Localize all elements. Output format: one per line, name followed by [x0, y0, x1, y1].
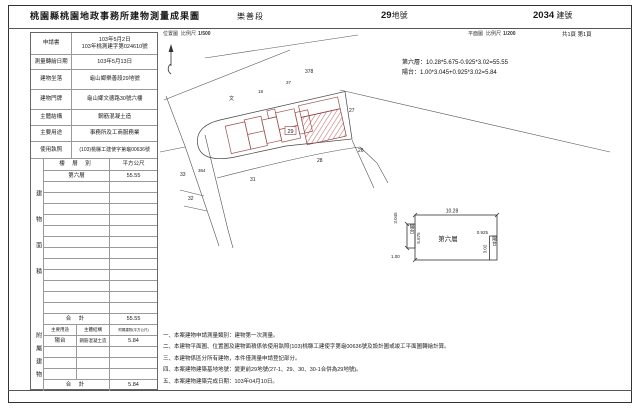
header-divider [8, 28, 632, 29]
row-label: 建物門牌 [31, 90, 72, 109]
empty-row [44, 248, 157, 259]
parcel-number-value: 29 [381, 10, 392, 21]
column-header-floor: 樓 層 別 [44, 159, 110, 170]
location-scale-label: 比例尺 [181, 31, 196, 37]
empty-row [44, 347, 157, 358]
section-name: 樂善段 [237, 11, 264, 22]
row-value: 事務所及工商服務業 [72, 126, 157, 141]
empty-row [44, 204, 157, 215]
row-label: 申請書 [31, 33, 72, 54]
annex-total-label: 合 計 [44, 380, 110, 391]
row-value: 103年5月2日 103年桃測建字第024610號 [72, 33, 157, 54]
area-formulas: 第六層：10.28*5.675-0.925*3.02=55.55 陽台：1.00… [402, 58, 508, 78]
floor-plan-scale: 平面圖比例尺1/200 [468, 30, 516, 37]
annex-section: 附屬建物 主要用途 主體結構 附屬建物(平方公尺) 陽台 鋼筋混凝土造 5.84… [31, 325, 157, 391]
empty-row [44, 358, 157, 369]
row-value: (103)桃縣工建使字第龜00636號 [72, 142, 157, 158]
area-header-row: 樓 層 別 平方公尺 [44, 159, 157, 171]
row-value: 鋼筋混凝土造 [72, 110, 157, 125]
empty-row [44, 292, 157, 303]
note-line: 二、本建物平面圖、位置圖及建物面積係依使用執照(103)桃縣工建使字第龜0063… [163, 342, 629, 353]
row-value: 103年5月13日 [72, 55, 157, 69]
area-data-row: 第六層 55.55 [44, 171, 157, 182]
note-line: 一、本案建物申請測量類別：建物第一次測量。 [163, 331, 629, 342]
building-unit: 建號 [556, 11, 572, 20]
empty-row [44, 369, 157, 380]
area-total-row: 合 計 55.55 [44, 314, 157, 325]
table-row-transcribe-date: 測量轉繪日期 103年5月13日 [31, 55, 157, 70]
annex-col-area: 附屬建物(平方公尺) [110, 325, 157, 335]
note-line: 三、本建物係區分所有建物，本件僅測量申請登記部分。 [163, 354, 629, 365]
row-label: 測量轉繪日期 [31, 55, 72, 69]
building-number: 2034 建號 [533, 10, 572, 21]
annex-vertical-label: 附屬建物 [31, 325, 44, 391]
table-row-usage: 主要用途 事務所及工商服務業 [31, 126, 157, 142]
area-vertical-label: 建物面積 [31, 159, 44, 325]
empty-row [44, 270, 157, 281]
location-map-scale: 位置圖比例尺1/500 [163, 30, 211, 37]
table-row-location: 建物坐落 龜山鄉樂善段29地號 [31, 70, 157, 90]
empty-row [44, 303, 157, 314]
annex-col-structure: 主體結構 [77, 325, 110, 335]
empty-row [44, 215, 157, 226]
empty-row [44, 259, 157, 270]
total-area-value: 55.55 [110, 314, 157, 324]
empty-row [44, 193, 157, 204]
building-area-section: 建物面積 樓 層 別 平方公尺 第六層 55.55 [31, 159, 157, 325]
note-line: 五、本案建物建築完成日期：103年04月10日。 [163, 377, 629, 388]
formula-floor: 第六層：10.28*5.675-0.925*3.02=55.55 [402, 58, 508, 68]
note-line: 四、本案建物建築基地地號：變更前29地號(27-1、29、30、30-1合併為2… [163, 365, 629, 376]
empty-row [44, 182, 157, 193]
table-row-application: 申請書 103年5月2日 103年桃測建字第024610號 [31, 33, 157, 55]
notes: 一、本案建物申請測量類別：建物第一次測量。 二、本建物平面圖、位置圖及建物面積係… [163, 331, 629, 388]
page-count: 共1頁 第1頁 [562, 30, 592, 38]
location-map-label: 位置圖 [163, 31, 178, 37]
annex-total-value: 5.84 [110, 380, 157, 391]
parcel-number: 29地號 [381, 10, 408, 21]
row-label: 使用執照 [31, 142, 72, 158]
parcel-unit: 地號 [392, 11, 408, 20]
floor-plan-scale-value: 1/200 [503, 31, 516, 37]
row-label: 建物坐落 [31, 70, 72, 89]
annex-data-row: 陽台 鋼筋混凝土造 5.84 [44, 336, 157, 347]
table-row-address: 建物門牌 龜山鄉文德路30號六樓 [31, 90, 157, 110]
page-title: 桃園縣桃園地政事務所建物測量成果圖 [30, 9, 200, 22]
row-value: 龜山鄉文德路30號六樓 [72, 90, 157, 109]
annex-structure: 鋼筋混凝土造 [77, 336, 110, 346]
annex-col-use: 主要用途 [44, 325, 77, 335]
empty-row [44, 226, 157, 237]
survey-document-page: 29 378 37 18 文 27 26 28 31 33 364 32 [0, 0, 640, 408]
annex-use: 陽台 [44, 336, 77, 346]
table-row-structure: 主體結構 鋼筋混凝土造 [31, 110, 157, 126]
annex-area-value: 5.84 [110, 336, 157, 346]
total-label: 合 計 [44, 314, 110, 324]
info-table: 申請書 103年5月2日 103年桃測建字第024610號 測量轉繪日期 103… [30, 32, 158, 390]
floor-plan-scale-label: 比例尺 [486, 31, 501, 37]
formula-balcony: 陽台：1.00*3.045+0.925*3.02=5.84 [402, 68, 508, 78]
annex-header-row: 主要用途 主體結構 附屬建物(平方公尺) [44, 325, 157, 336]
floor-plan-label: 平面圖 [468, 31, 483, 37]
application-number: 103年桃測建字第024610號 [82, 44, 148, 51]
empty-row [44, 237, 157, 248]
row-value: 龜山鄉樂善段29地號 [72, 70, 157, 89]
annex-total-row: 合 計 5.84 [44, 380, 157, 391]
location-scale-value: 1/500 [198, 31, 211, 37]
floor-name: 第六層 [44, 171, 110, 181]
column-header-area: 平方公尺 [110, 159, 157, 170]
floor-area-value: 55.55 [110, 171, 157, 181]
application-date: 103年5月2日 [99, 37, 131, 44]
row-label: 主體結構 [31, 110, 72, 125]
empty-row [44, 281, 157, 292]
row-label: 主要用途 [31, 126, 72, 141]
table-row-license: 使用執照 (103)桃縣工建使字第龜00636號 [31, 142, 157, 159]
building-number-value: 2034 [533, 10, 554, 21]
